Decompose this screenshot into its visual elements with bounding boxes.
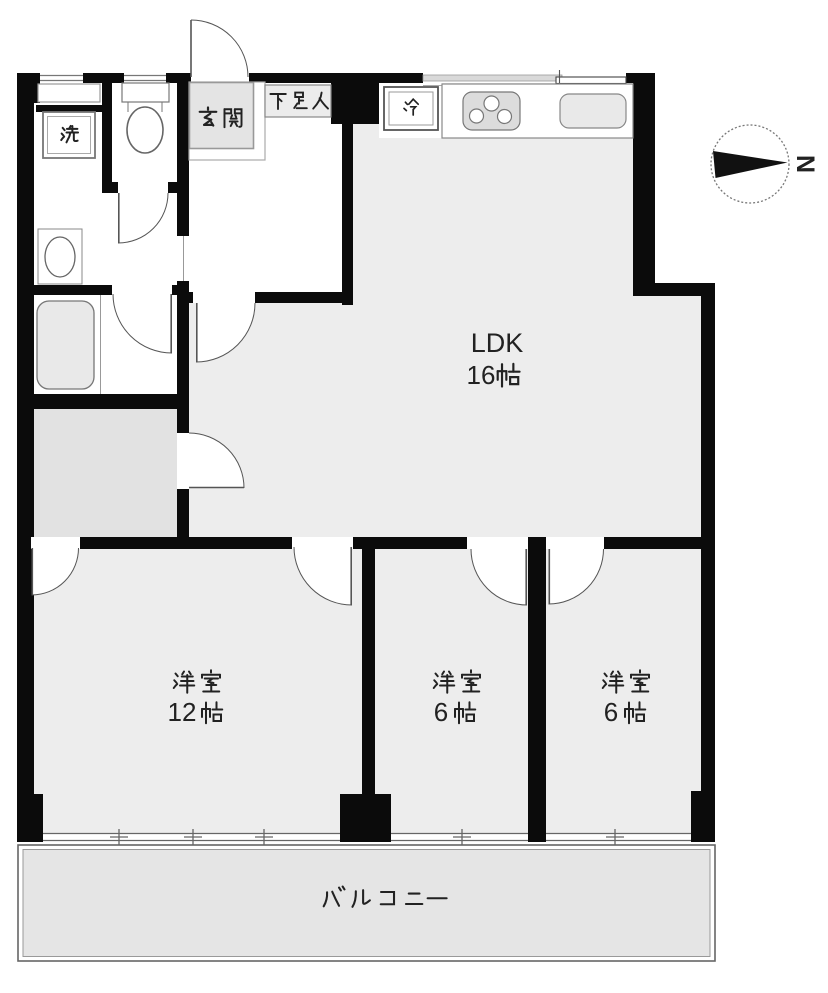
svg-text:N: N <box>791 155 819 173</box>
svg-text:LDK: LDK <box>471 328 524 358</box>
svg-text:6: 6 <box>434 697 448 727</box>
svg-text:6: 6 <box>604 697 618 727</box>
svg-text:16: 16 <box>467 360 496 390</box>
svg-text:12: 12 <box>168 697 197 727</box>
